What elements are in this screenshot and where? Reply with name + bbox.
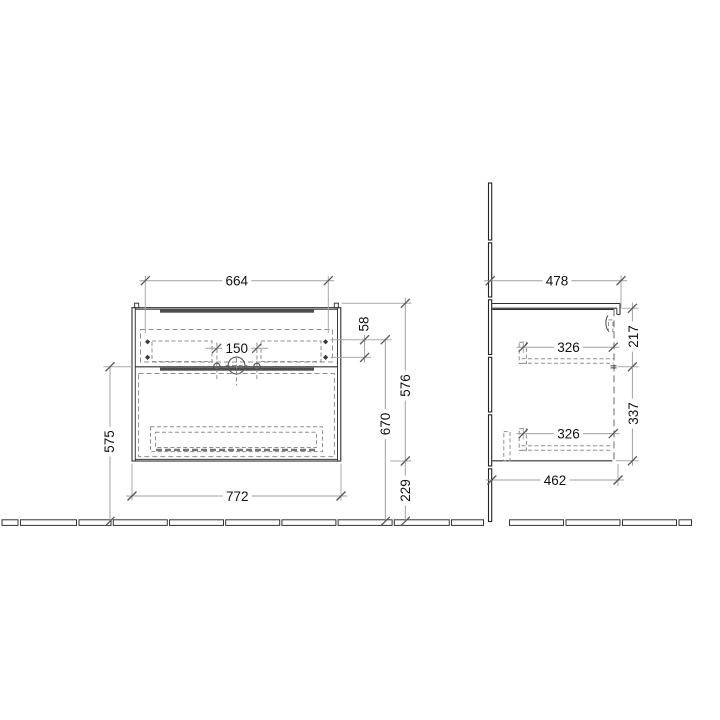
dim-label-floor-clearance: 229 [398,479,413,502]
right-top-tab [334,303,338,308]
dim-label-bottom-depth: 462 [544,473,567,488]
dim-label-tap-hole-spacing: 150 [226,341,249,356]
cabinet-front-outline [132,303,341,461]
upper-handle-left [152,341,212,362]
drill-mark [145,339,150,344]
dimension-body-height: 576 [342,298,414,466]
dim-label-upper-rail-length: 326 [557,340,580,355]
lower-handle-inner [156,432,317,447]
dim-label-lower-front-height: 337 [626,402,641,425]
washbasin-outline [141,330,333,386]
dimension-fixing-height: 670 [378,335,393,526]
dimension-lower-front-height: 337 [616,367,641,466]
dimension-front-height: 575 [102,362,132,526]
dim-label-top-width: 664 [226,274,249,289]
lower-drawer-inner [139,374,335,457]
dimension-floor-clearance: 229 [398,461,413,526]
hinge-plate-hidden [609,320,613,332]
dim-label-body-height: 576 [398,374,413,397]
dimension-bottom-width: 772 [126,464,348,504]
technical-drawing: 664 150 58 576 [0,0,720,720]
dim-label-bottom-width: 772 [226,489,249,504]
left-top-tab [135,303,139,308]
dim-label-top-depth: 478 [546,274,569,289]
upper-handle-right [261,341,321,362]
drain-hidden [504,432,510,461]
dimension-tap-hole-spacing: 150 [206,341,269,356]
dim-label-front-height: 575 [102,430,117,453]
front-view: 664 150 58 576 [102,274,413,526]
dimension-fixing-offset: 58 [331,313,392,363]
dimension-top-width: 664 [140,274,335,334]
side-view: 478 217 337 326 [484,274,641,488]
dimension-lower-rail-length: 326 [517,426,620,441]
dimension-top-depth: 478 [484,274,627,309]
dim-label-fixing-offset: 58 [356,316,371,331]
dim-label-upper-front-height: 217 [626,325,641,348]
drill-mark [145,355,150,360]
drawer-rails-side [504,342,614,461]
drill-mark [323,339,328,344]
dimension-upper-rail-length: 326 [517,340,620,355]
dimension-bottom-depth: 462 [486,464,625,488]
drill-mark [323,355,328,360]
floor-line [2,520,692,526]
dim-label-fixing-height: 670 [378,413,393,436]
dim-label-lower-rail-length: 326 [557,426,580,441]
vanity-dimension-drawing: 664 150 58 576 [0,0,720,720]
wall-line [489,183,492,522]
top-rail-bar [160,310,314,313]
dimension-upper-front-height: 217 [618,303,642,372]
